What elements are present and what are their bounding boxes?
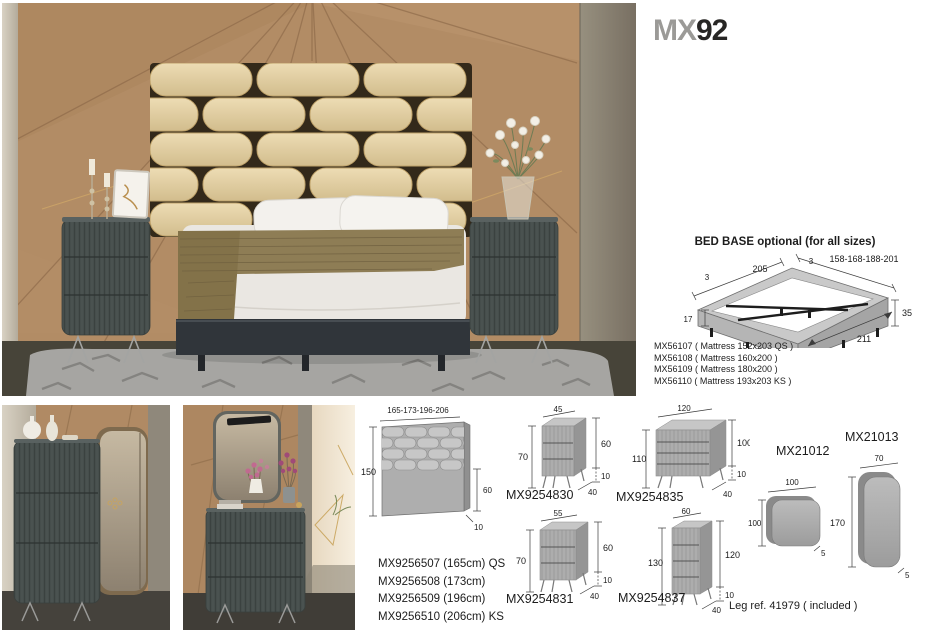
cabinet-mirror-render	[2, 405, 170, 630]
dresser-mirror-render	[183, 405, 355, 630]
dim-830-body: 60	[601, 439, 611, 449]
dim-837-leg: 10	[725, 591, 734, 600]
cabinet-mirror-photo	[2, 405, 170, 630]
concrete-wall-left	[2, 3, 18, 343]
dim-831-body: 60	[603, 543, 613, 553]
dim-height-back: 35	[902, 308, 912, 318]
dim-21013-depth: 5	[905, 571, 910, 580]
headboard-model: MX9256508 (173cm)	[378, 574, 505, 592]
dim-headboard-panel: 60	[483, 486, 492, 495]
leg-reference-note: Leg ref. 41979 ( included )	[729, 600, 857, 612]
books	[217, 504, 243, 509]
bed-base-heading: BED BASE optional (for all sizes)	[660, 236, 910, 248]
dim-21012-depth: 5	[821, 549, 826, 558]
dim-837-depth: 40	[712, 606, 721, 614]
dim-835-depth: 40	[723, 490, 732, 499]
dim-headboard-depth: 10	[474, 523, 483, 532]
page-title: MX92	[653, 16, 727, 46]
dresser-mirror-photo	[183, 405, 355, 630]
headboard-model: MX9256507 (165cm) QS	[378, 556, 505, 574]
dim-831-leg: 10	[603, 576, 612, 585]
headboard-model-list: MX9256507 (165cm) QS MX9256508 (173cm) M…	[378, 556, 505, 626]
page-title-number: 92	[696, 14, 727, 47]
wall-mirror	[213, 411, 281, 503]
mirror-tall-drawing: 70 170 5	[828, 452, 922, 585]
dim-835-body: 100	[737, 438, 750, 448]
bed-base-model: MX56110 ( Mattress 193x203 KS )	[654, 376, 793, 388]
dim-831-height: 70	[516, 556, 526, 566]
dim-830-width: 45	[554, 405, 563, 414]
main-bedroom-photo	[2, 3, 636, 396]
dim-831-width: 55	[554, 509, 563, 518]
main-bedroom-render	[2, 3, 636, 396]
dim-widths: 158-168-188-201	[829, 254, 898, 264]
dim-830-depth: 40	[588, 488, 597, 496]
headboard-model: MX9256509 (196cm)	[378, 591, 505, 609]
dim-length: 205	[752, 264, 767, 274]
bed-base-model: MX56108 ( Mattress 160x200 )	[654, 353, 793, 365]
tall-cabinet	[14, 439, 100, 621]
bed-base-model-list: MX56107 ( Mattress 152x203 QS ) MX56108 …	[654, 341, 793, 387]
bed-base-model: MX56107 ( Mattress 152x203 QS )	[654, 341, 793, 353]
dim-837-height: 130	[648, 558, 663, 568]
dim-21012-width: 100	[785, 478, 799, 487]
bed-base-drawing: 3 205 3 158-168-188-201 17 35 211	[680, 248, 926, 353]
nightstand-large-label: MX9254831	[506, 592, 573, 606]
nightstand-small-label: MX9254830	[506, 488, 573, 502]
dim-837-body: 120	[725, 550, 740, 560]
tall-chest-label: MX9254837	[618, 591, 685, 605]
headboard-drawing: 165-173-196-206 150 60 10	[360, 403, 495, 538]
dim-headboard-height: 150	[361, 467, 376, 477]
dim-height-front: 17	[684, 315, 693, 324]
mirror-square-drawing: 100 100 5	[748, 470, 832, 563]
dim-depth: 211	[857, 334, 871, 344]
concrete-wall-right	[580, 3, 636, 343]
page-title-prefix: MX	[653, 14, 696, 47]
dim-835-width: 120	[677, 404, 691, 413]
dim-rim-right: 3	[809, 257, 814, 266]
bed-frame	[176, 319, 470, 355]
dim-831-depth: 40	[590, 592, 599, 600]
picture-frame	[113, 170, 149, 218]
nightstand-large-drawing: 55 70 60 10 40	[512, 508, 617, 605]
dim-830-leg: 10	[601, 472, 610, 481]
dim-835-height: 110	[632, 454, 646, 464]
catalog-page: { "title": {"prefix": "MX", "number": "9…	[0, 0, 926, 640]
mirror-tall-label: MX21013	[845, 430, 899, 444]
mirror-square-label: MX21012	[776, 444, 830, 458]
dresser-label: MX9254835	[616, 490, 683, 504]
nightstand-small-drawing: 45 70 60 10 40	[512, 404, 617, 501]
dim-21013-height: 170	[830, 518, 845, 528]
dim-835-leg: 10	[737, 470, 746, 479]
dresser	[206, 500, 305, 623]
bed-base-model: MX56109 ( Mattress 180x200 )	[654, 364, 793, 376]
standing-mirror	[96, 427, 148, 595]
headboard-model: MX9256510 (206cm) KS	[378, 609, 505, 627]
dim-headboard-widths: 165-173-196-206	[387, 406, 449, 415]
dim-21013-width: 70	[875, 454, 884, 463]
dim-837-width: 60	[682, 507, 691, 516]
dim-830-height: 70	[518, 452, 528, 462]
dim-rim-left: 3	[705, 273, 710, 282]
dim-21012-height: 100	[748, 519, 762, 528]
